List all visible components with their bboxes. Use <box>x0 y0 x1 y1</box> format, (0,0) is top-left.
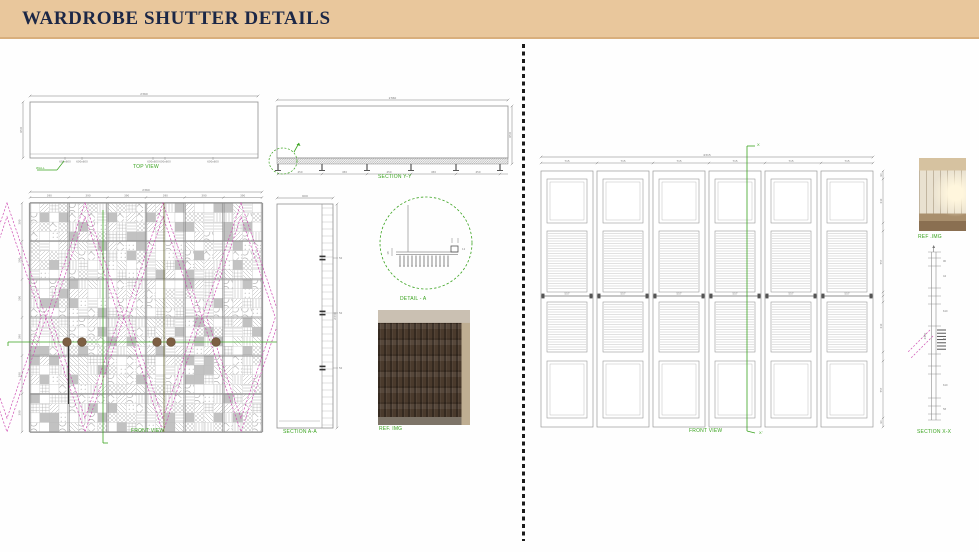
svg-text:715: 715 <box>844 159 849 163</box>
svg-text:50: 50 <box>339 366 343 370</box>
svg-text:55: 55 <box>943 338 947 341</box>
svg-text:2330: 2330 <box>333 312 337 320</box>
svg-text:2440: 2440 <box>923 332 927 339</box>
svg-text:390: 390 <box>18 219 22 224</box>
front-view-right-drawing: 5575575575575575574315715715715715715715… <box>540 146 885 433</box>
svg-text:450: 450 <box>431 170 436 174</box>
svg-text:600x600: 600x600 <box>147 160 159 164</box>
top-view-drawing: 2360650600x600600x600600x600600x600600x6… <box>19 92 259 170</box>
top-view-label: TOP VIEW <box>133 164 159 170</box>
svg-text:715: 715 <box>620 159 625 163</box>
svg-text:715: 715 <box>732 159 737 163</box>
svg-text:650: 650 <box>508 132 512 138</box>
svg-text:390: 390 <box>124 193 129 197</box>
svg-text:715: 715 <box>676 159 681 163</box>
detail-a-label: DETAIL - A <box>400 296 426 302</box>
svg-text:390: 390 <box>18 410 22 415</box>
svg-text:610: 610 <box>879 323 883 328</box>
svg-text:610: 610 <box>879 198 883 203</box>
svg-text:90: 90 <box>879 173 883 177</box>
svg-text:650: 650 <box>19 127 23 133</box>
svg-text:44: 44 <box>943 275 947 278</box>
reference-photo-corridor <box>919 158 966 231</box>
reference-photo-wardrobe <box>378 310 470 425</box>
section-aa-label: SECTION A-A <box>283 429 317 435</box>
svg-text:390: 390 <box>18 372 22 377</box>
svg-text:90: 90 <box>943 260 947 263</box>
front-view-left-drawing: 2360390390390390390390390390390390390390 <box>0 188 284 443</box>
section-xx-drawing: 904461055610582440 <box>908 245 948 420</box>
svg-text:600x600: 600x600 <box>207 160 219 164</box>
svg-text:450: 450 <box>476 170 481 174</box>
svg-text:557: 557 <box>564 292 569 296</box>
section-yy-drawing: 2360650450450450450450 <box>269 96 513 175</box>
svg-text:58: 58 <box>943 408 947 411</box>
wall-note-label: WALL <box>36 165 45 171</box>
svg-text:557: 557 <box>620 292 625 296</box>
svg-text:557: 557 <box>788 292 793 296</box>
svg-text:390: 390 <box>201 193 206 197</box>
svg-text:557: 557 <box>879 259 883 264</box>
svg-text:90: 90 <box>879 420 883 424</box>
detail-a-drawing: 1812 <box>380 197 472 289</box>
section-aa-drawing: 5050506002330 <box>276 194 343 429</box>
svg-text:450: 450 <box>298 170 303 174</box>
svg-text:600: 600 <box>302 194 308 198</box>
section-xx-label: SECTION X-X <box>917 429 951 435</box>
section-yy-label: SECTION Y-Y <box>378 174 412 180</box>
svg-text:557: 557 <box>879 387 883 392</box>
svg-text:390: 390 <box>47 193 52 197</box>
svg-text:600x600: 600x600 <box>59 160 71 164</box>
section-marker-x-bottom: X' <box>759 430 763 436</box>
svg-text:390: 390 <box>240 193 245 197</box>
svg-text:390: 390 <box>18 334 22 339</box>
svg-text:18: 18 <box>386 251 390 255</box>
section-marker-x-top: X <box>757 142 760 148</box>
front-view-right-label: FRONT VIEW <box>689 428 722 434</box>
svg-text:50: 50 <box>339 311 343 315</box>
svg-text:557: 557 <box>732 292 737 296</box>
svg-text:390: 390 <box>18 296 22 301</box>
svg-text:557: 557 <box>844 292 849 296</box>
svg-text:715: 715 <box>788 159 793 163</box>
svg-text:600x600: 600x600 <box>159 160 171 164</box>
svg-text:600x600: 600x600 <box>76 160 88 164</box>
front-view-left-label: FRONT VIEW <box>131 428 164 434</box>
svg-text:610: 610 <box>943 384 948 387</box>
svg-text:12: 12 <box>462 247 466 251</box>
svg-text:2360: 2360 <box>389 96 397 100</box>
ref-img-left-label: REF. IMG <box>379 426 402 432</box>
svg-text:4315: 4315 <box>703 153 711 157</box>
svg-text:450: 450 <box>342 170 347 174</box>
cad-linework: 2360650600x600600x600600x600600x600600x6… <box>0 0 979 552</box>
svg-text:390: 390 <box>85 193 90 197</box>
svg-text:2360: 2360 <box>142 188 150 192</box>
svg-text:557: 557 <box>676 292 681 296</box>
svg-text:715: 715 <box>564 159 569 163</box>
drawing-sheet: WARDROBE SHUTTER DETAILS 2360650600x6006… <box>0 0 979 552</box>
svg-text:390: 390 <box>18 257 22 262</box>
svg-text:390: 390 <box>163 193 168 197</box>
svg-text:610: 610 <box>943 310 948 313</box>
ref-img-right-label: REF .IMG <box>918 234 942 240</box>
svg-text:50: 50 <box>339 256 343 260</box>
svg-text:2360: 2360 <box>140 92 148 96</box>
